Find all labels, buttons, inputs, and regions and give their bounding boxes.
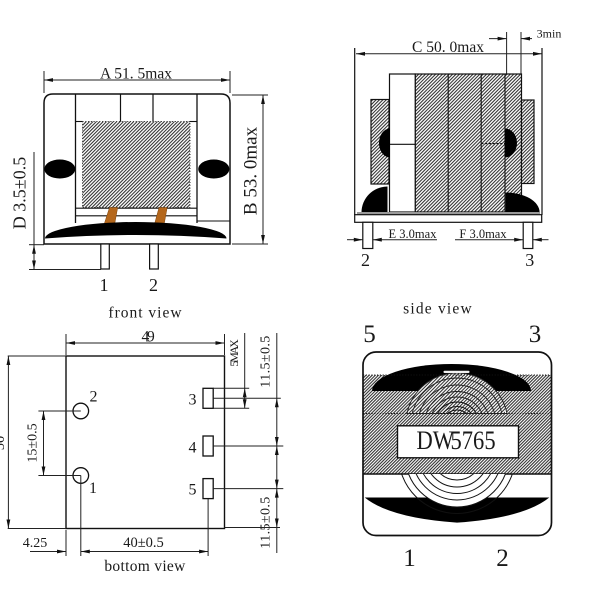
svg-text:F 3.0max: F 3.0max: [459, 227, 507, 241]
svg-text:2: 2: [149, 275, 158, 295]
svg-text:front view: front view: [108, 305, 182, 322]
svg-text:5MAX: 5MAX: [227, 339, 241, 367]
svg-text:2: 2: [361, 250, 370, 270]
svg-text:4: 4: [189, 440, 197, 457]
svg-text:A 51. 5max: A 51. 5max: [100, 66, 172, 83]
svg-text:bottom view: bottom view: [104, 558, 186, 575]
svg-text:3: 3: [529, 321, 542, 348]
svg-text:B 53. 0max: B 53. 0max: [241, 126, 262, 215]
svg-text:1: 1: [100, 275, 109, 295]
svg-text:2: 2: [90, 389, 98, 406]
svg-text:C 50. 0max: C 50. 0max: [412, 39, 484, 56]
svg-text:11.5±0.5: 11.5±0.5: [259, 496, 274, 548]
svg-text:40±0.5: 40±0.5: [123, 535, 164, 551]
svg-text:5: 5: [363, 321, 376, 348]
svg-text:50: 50: [0, 436, 8, 451]
svg-text:side view: side view: [403, 301, 473, 318]
svg-text:3min: 3min: [537, 27, 562, 41]
svg-text:5: 5: [189, 482, 197, 499]
svg-text:15±0.5: 15±0.5: [26, 423, 41, 462]
svg-text:3: 3: [189, 392, 197, 409]
svg-text:E 3.0max: E 3.0max: [389, 227, 438, 241]
svg-text:1: 1: [89, 480, 97, 497]
svg-text:2: 2: [496, 545, 509, 572]
svg-text:11.5±0.5: 11.5±0.5: [259, 335, 274, 387]
svg-text:3: 3: [525, 250, 534, 270]
svg-text:D 3.5±0.5: D 3.5±0.5: [10, 157, 30, 229]
svg-text:1: 1: [403, 545, 416, 572]
svg-text:DW5765: DW5765: [416, 426, 495, 455]
svg-text:4.25: 4.25: [23, 536, 48, 551]
